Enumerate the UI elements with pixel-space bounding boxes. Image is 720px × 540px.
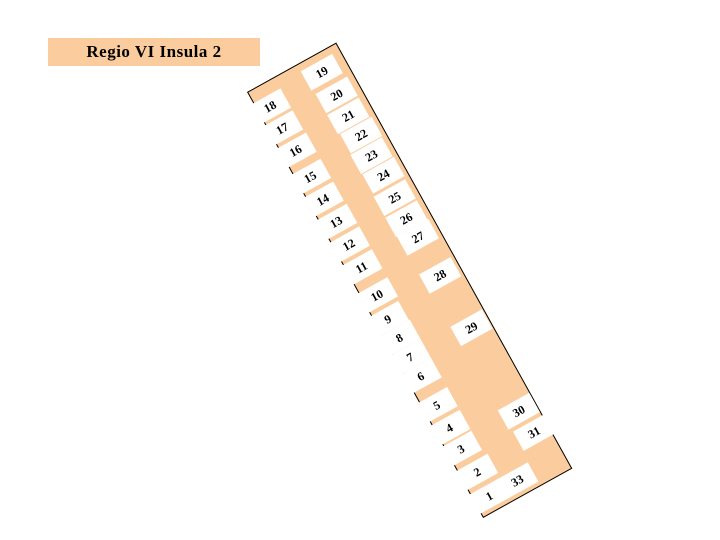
entrance-label-28: 28 — [419, 257, 461, 294]
insula-outline: 1234567891011121314151617181920212223242… — [247, 43, 572, 518]
entrance-label-29: 29 — [450, 309, 492, 346]
plan-canvas: Regio VI Insula 2 1234567891011121314151… — [0, 0, 720, 540]
plan-title: Regio VI Insula 2 — [48, 38, 260, 66]
